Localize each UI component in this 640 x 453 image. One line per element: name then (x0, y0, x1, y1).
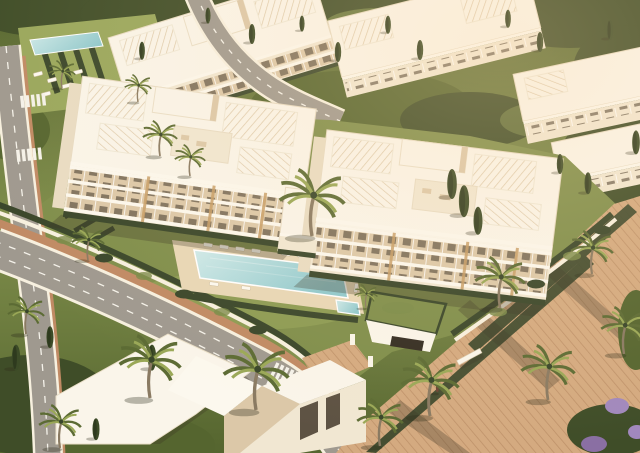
golden-hour-light-overlay (0, 0, 640, 453)
aerial-render-scene: Aerial 3D architectural rendering at gol… (0, 0, 640, 453)
scene-canvas (0, 0, 640, 453)
